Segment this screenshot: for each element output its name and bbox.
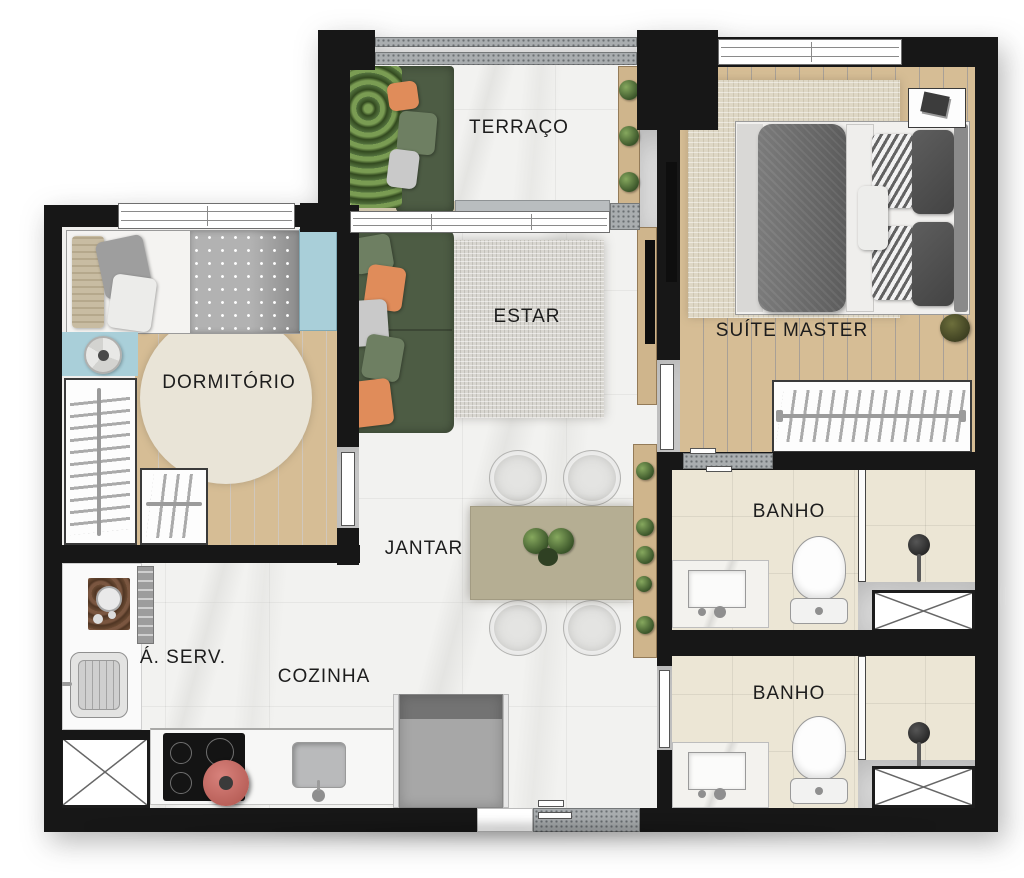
bath1-sliding-door-handle-2 [706,466,732,472]
floor-plan: TERRAÇO SUÍTE MASTER ESTAR DORMITÓRIO JA… [0,0,1024,878]
dormitorio-rack-rail [146,502,202,506]
dormitorio-rack-hangers [146,474,202,538]
bath2-soap [698,790,706,798]
suite-duvet [758,124,846,312]
wall-terrace-top-left-pillar [318,30,375,70]
drying-rack [137,566,154,644]
entrance-door-handle-2 [538,812,572,819]
suite-pillow-white [858,186,888,250]
suite-pillow-dark-2 [912,222,954,306]
terrace-railing-outer [375,37,637,47]
room-label-jantar: JANTAR [385,538,463,560]
room-label-dormitorio: DORMITÓRIO [162,372,296,394]
room-label-cozinha: COZINHA [278,666,371,688]
terrace-plant-3 [619,172,639,192]
wall-between-baths [657,630,998,656]
bath1-toilet-bowl [792,536,846,600]
bath1-flush-button [815,607,823,615]
bath1-sink [688,570,746,608]
wall-dormitorio-bottom [44,545,360,563]
shelf-plant-5 [636,616,654,634]
dormitorio-duvet [190,231,300,333]
duct-shaft-bath1 [872,590,975,632]
dormitorio-desk [299,229,337,331]
suite-plant [940,314,970,342]
bath1-soap [698,608,706,616]
dining-chair-4 [563,600,621,656]
dining-chair-2 [563,450,621,506]
entrance-door-handle-1 [538,800,564,807]
cooktop-burner-1 [170,742,192,764]
shelf-plant-4 [636,576,652,592]
shelf-plant-3 [636,546,654,564]
laundry-tub-basin [78,660,120,710]
dormitorio-fan-center [98,350,109,361]
suite-headboard [954,124,968,312]
estar-tv [645,240,655,344]
washer-drum [96,586,122,612]
bath2-faucet [714,788,726,800]
suite-door [660,364,674,450]
bath1-shower-divider [858,468,866,582]
bath2-toilet-bowl [792,716,846,780]
estar-sliding-door-mullion-2 [531,214,532,230]
estar-sliding-door [350,211,610,233]
wall-service-shaft-top [44,730,150,740]
shelf-plant-1 [636,462,654,480]
room-label-banho-2: BANHO [753,683,826,705]
suite-window-mullion [811,42,812,62]
dormitorio-wardrobe-rail [97,388,101,536]
bath2-shower-head [908,722,930,744]
bath1-sliding-door-handle-1 [690,448,716,454]
washer-knob-2 [108,611,116,619]
red-pan-center [219,776,233,790]
bath2-door [659,670,670,748]
cooktop-burner-3 [170,772,192,794]
dining-chair-1 [489,450,547,506]
dining-chair-3 [489,600,547,656]
fridge [399,694,503,808]
dormitorio-round-rug [140,312,312,484]
duct-shaft-kitchen [60,736,150,808]
estar-rug [452,240,604,418]
estar-sliding-door-mullion-1 [431,214,432,230]
dining-centerpiece-leaf-3 [538,548,558,566]
kitchen-faucet-stem [317,780,320,791]
dormitorio-window [118,203,295,229]
wall-dormitorio-right-upper [337,205,359,447]
shelf-plant-2 [636,518,654,536]
wall-right [975,37,998,822]
dormitorio-window-mullion [207,206,208,226]
room-label-banho-1: BANHO [753,501,826,523]
building-ground-shadow [70,824,950,844]
bath1-faucet [714,606,726,618]
bath1-shower-head [908,534,930,556]
terrace-plant-1 [619,80,639,100]
estar-pillow-green-2 [360,333,405,383]
suite-closet-rail-end-left [776,410,783,422]
suite-tv [666,162,677,282]
bath2-sink [688,752,746,790]
terrace-pillow-gray [386,148,420,189]
dormitorio-pillow-white [106,273,157,333]
duct-shaft-bath2 [872,766,975,808]
suite-window [718,39,902,65]
suite-closet-rail-end-right [959,410,966,422]
fridge-cabinet-right [503,694,509,808]
dormitorio-door [341,452,355,526]
bath2-shower-divider [858,656,866,760]
washer-knob-1 [93,614,103,624]
bath2-flush-button [815,787,823,795]
terrace-railing-inner [375,52,637,65]
terrace-plant-2 [619,126,639,146]
terrace-pillow-orange [386,80,420,112]
room-label-estar: ESTAR [494,306,561,328]
room-label-area-servico: Á. SERV. [140,647,226,669]
room-label-suite-master: SUÍTE MASTER [716,320,868,342]
suite-pillow-dark-1 [912,130,954,214]
suite-closet-rail [780,414,962,418]
room-label-terraco: TERRAÇO [469,117,569,139]
ledge-estar-window [610,203,640,230]
bath1-shower-stem [917,554,921,582]
